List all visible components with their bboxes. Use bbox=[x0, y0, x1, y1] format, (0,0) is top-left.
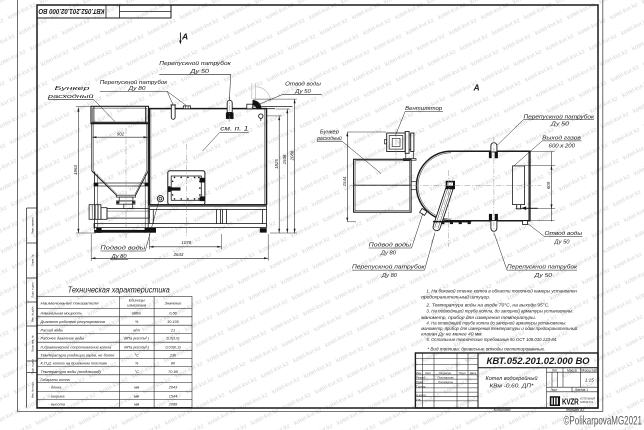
svg-text:0,3(3,0): 0,3(3,0) bbox=[166, 337, 180, 341]
svg-text:KVZR: KVZR bbox=[562, 397, 579, 407]
svg-text:мм: мм bbox=[134, 403, 140, 407]
svg-text:1. На боковой стенке котла в: 1. На боковой стенке котла в области топ… bbox=[426, 287, 577, 294]
svg-text:1938: 1938 bbox=[282, 154, 287, 164]
svg-text:Копировал: Копировал bbox=[494, 408, 511, 412]
svg-text:Подвод воды: Подвод воды bbox=[100, 246, 145, 252]
svg-text:1:15: 1:15 bbox=[585, 378, 594, 383]
svg-text:1078: 1078 bbox=[181, 240, 191, 245]
svg-text:Ду 50: Ду 50 bbox=[553, 239, 569, 245]
svg-text:1963: 1963 bbox=[73, 165, 78, 175]
svg-text:Инв. № подл.: Инв. № подл. bbox=[31, 382, 35, 398]
svg-text:- ширина: - ширина bbox=[49, 395, 65, 399]
svg-text:600 х 200: 600 х 200 bbox=[549, 144, 575, 150]
svg-text:Единицы: Единицы bbox=[129, 299, 145, 303]
svg-text:Лист: Лист bbox=[551, 388, 558, 392]
svg-text:%: % bbox=[135, 320, 139, 324]
svg-text:предохранительный штуцер.: предохранительный штуцер. bbox=[421, 294, 490, 301]
svg-text:©PolikarpovaMG2021: ©PolikarpovaMG2021 bbox=[564, 413, 643, 427]
svg-text:- длина: - длина bbox=[49, 386, 62, 390]
svg-text:* Вид топлива: древесные отхо: * Вид топлива: древесные отходы пеллетир… bbox=[427, 346, 545, 352]
svg-text:Бункер: Бункер bbox=[55, 86, 90, 92]
svg-text:Пров.: Пров. bbox=[416, 380, 424, 384]
svg-text:Наименование показателя: Наименование показателя bbox=[41, 301, 99, 305]
svg-text:Ду 50: Ду 50 bbox=[533, 273, 552, 279]
svg-text:0,60: 0,60 bbox=[169, 312, 177, 316]
svg-text:30-100: 30-100 bbox=[167, 320, 180, 324]
svg-text:Диапазон рабочего регулировани: Диапазон рабочего регулирования bbox=[39, 320, 105, 324]
svg-text:- высота: - высота bbox=[49, 403, 65, 407]
svg-text:Температура уходящих газов, не: Температура уходящих газов, не более bbox=[41, 354, 115, 358]
svg-text:Взам. инв. №: Взам. инв. № bbox=[31, 335, 35, 351]
svg-text:Лит.: Лит. bbox=[552, 368, 558, 372]
svg-text:Расход воды: Расход воды bbox=[41, 328, 64, 332]
svg-text:измерения: измерения bbox=[127, 303, 146, 307]
svg-text:Отвод воды: Отвод воды bbox=[545, 231, 583, 237]
svg-text:Рабочее давление воды: Рабочее давление воды bbox=[41, 337, 85, 341]
svg-text:1544: 1544 bbox=[169, 395, 177, 399]
svg-text:Перепускной патрубок: Перепускной патрубок bbox=[352, 264, 425, 271]
svg-text:Т.контр.: Т.контр. bbox=[416, 384, 426, 388]
svg-text:Отвод воды: Отвод воды bbox=[285, 81, 321, 87]
svg-text:Ду 50: Ду 50 bbox=[189, 69, 209, 75]
svg-text:70-95: 70-95 bbox=[168, 370, 179, 374]
svg-text:КВТ.052.201.02.000 ВО: КВТ.052.201.02.000 ВО bbox=[38, 7, 104, 14]
svg-text:230: 230 bbox=[169, 354, 177, 358]
svg-text:мм: мм bbox=[134, 386, 140, 390]
svg-text:Разраб.: Разраб. bbox=[416, 376, 426, 380]
svg-text:4. На отводящей трубе котла д: 4. На отводящей трубе котла до запорной … bbox=[426, 319, 567, 326]
svg-text:К.П.Д. котла на приемном топли: К.П.Д. котла на приемном топливе bbox=[41, 362, 108, 366]
svg-text:Подвод воды: Подвод воды bbox=[369, 243, 411, 249]
svg-text:МПа (кгс/см² ): МПа (кгс/см² ) bbox=[124, 345, 150, 349]
svg-text:2643: 2643 bbox=[173, 252, 184, 257]
svg-text:клапан Ду не менее 40 мм.: клапан Ду не менее 40 мм. bbox=[421, 332, 483, 338]
svg-text:Ду 50: Ду 50 bbox=[550, 122, 569, 128]
svg-text:Справ. №: Справ. № bbox=[31, 254, 35, 266]
svg-text:Гидравлическое сопротивление к: Гидравлическое сопротивление котла bbox=[41, 345, 112, 349]
svg-text:МВт: МВт bbox=[132, 312, 141, 316]
svg-text:1825: 1825 bbox=[274, 159, 279, 169]
svg-text:А: А bbox=[181, 32, 188, 42]
svg-text:Подп.: Подп. bbox=[459, 371, 467, 375]
svg-text:Изм.: Изм. bbox=[416, 371, 422, 375]
svg-text:мм: мм bbox=[134, 395, 140, 399]
svg-text:902: 902 bbox=[117, 132, 125, 137]
svg-text:Масса: Масса bbox=[567, 368, 577, 372]
svg-text:Бункер: Бункер bbox=[320, 130, 339, 136]
svg-text:Лист: Лист bbox=[425, 371, 432, 375]
svg-text:КВм -0,60. ДП*: КВм -0,60. ДП* bbox=[490, 383, 535, 389]
svg-text:80: 80 bbox=[171, 362, 176, 366]
svg-text:Перепускной патрубок: Перепускной патрубок bbox=[100, 79, 168, 86]
svg-text:расходный: расходный bbox=[46, 93, 93, 100]
svg-text:Поликарпов: Поликарпов bbox=[438, 380, 453, 384]
svg-text:манометр, прибор для измерения: манометр, прибор для измерения температу… bbox=[421, 315, 536, 321]
svg-text:Ду 80: Ду 80 bbox=[381, 273, 397, 279]
svg-text:2643: 2643 bbox=[168, 386, 178, 390]
svg-text:0,03(0,3): 0,03(0,3) bbox=[165, 345, 181, 349]
svg-text:Инв. № дубл.: Инв. № дубл. bbox=[31, 306, 35, 322]
svg-text:°С: °С bbox=[135, 354, 140, 358]
svg-text:Перепускной патрубок: Перепускной патрубок bbox=[159, 60, 231, 67]
svg-text:№ докум.: № докум. bbox=[439, 371, 452, 375]
svg-text:%: % bbox=[135, 362, 139, 366]
svg-text:Котел водогрейный: Котел водогрейный bbox=[486, 375, 538, 382]
svg-text:А: А bbox=[473, 82, 480, 92]
svg-text:Подп. и дата: Подп. и дата bbox=[31, 359, 35, 375]
svg-text:Температура воды (вход/выход): Температура воды (вход/выход) bbox=[41, 370, 102, 374]
svg-text:21: 21 bbox=[170, 328, 175, 332]
svg-text:ЗАВОД Р15: ЗАВОД Р15 bbox=[580, 401, 594, 404]
svg-text:°С: °С bbox=[135, 370, 140, 374]
svg-text:5. Остальные технические треб: 5. Остальные технические требования по О… bbox=[426, 337, 557, 343]
svg-text:Формат А3: Формат А3 bbox=[566, 408, 585, 412]
svg-text:Ду 80: Ду 80 bbox=[111, 254, 127, 260]
svg-text:2. Температура воды на входе: 2. Температура воды на входе 70°С, на вы… bbox=[425, 302, 549, 308]
svg-text:Утв.: Утв. bbox=[416, 397, 422, 401]
svg-text:Масштаб: Масштаб bbox=[581, 368, 597, 372]
svg-text:Техническая характеристика: Техническая характеристика bbox=[68, 286, 170, 295]
svg-text:1544: 1544 bbox=[342, 176, 347, 186]
svg-text:манометр, прибор для измерения: манометр, прибор для измерения температу… bbox=[421, 325, 577, 332]
svg-text:Дата: Дата bbox=[470, 371, 477, 375]
svg-text:см. п. 1: см. п. 1 bbox=[220, 126, 248, 133]
svg-text:3. На подводящей трубе котла,: 3. На подводящей трубе котла, до запорно… bbox=[426, 308, 574, 315]
svg-text:Перепускной патрубок: Перепускной патрубок bbox=[524, 113, 595, 120]
svg-text:Перепускной патрубок: Перепускной патрубок bbox=[507, 264, 578, 271]
svg-text:Поликарпова: Поликарпова bbox=[438, 376, 454, 380]
svg-text:2088: 2088 bbox=[168, 403, 178, 407]
svg-text:Перв. примен.: Перв. примен. bbox=[31, 217, 35, 235]
svg-text:Подп. и дата: Подп. и дата bbox=[31, 282, 35, 298]
svg-text:Листов 1: Листов 1 bbox=[575, 388, 588, 392]
svg-text:Габариты котла: Габариты котла bbox=[41, 378, 70, 382]
svg-text:МПа (кгс/см² ): МПа (кгс/см² ) bbox=[124, 337, 150, 341]
svg-text:Выход газов: Выход газов bbox=[542, 136, 581, 142]
svg-text:Значение: Значение bbox=[165, 301, 182, 305]
svg-text:609: 609 bbox=[546, 181, 551, 189]
svg-text:Ду 80: Ду 80 bbox=[380, 250, 396, 256]
svg-text:м³/ч: м³/ч bbox=[133, 328, 140, 332]
svg-text:Номинальная мощность: Номинальная мощность bbox=[41, 312, 83, 316]
svg-text:2088: 2088 bbox=[290, 150, 295, 161]
svg-text:КВТ.052.201.02.000 ВО: КВТ.052.201.02.000 ВО bbox=[487, 356, 590, 366]
